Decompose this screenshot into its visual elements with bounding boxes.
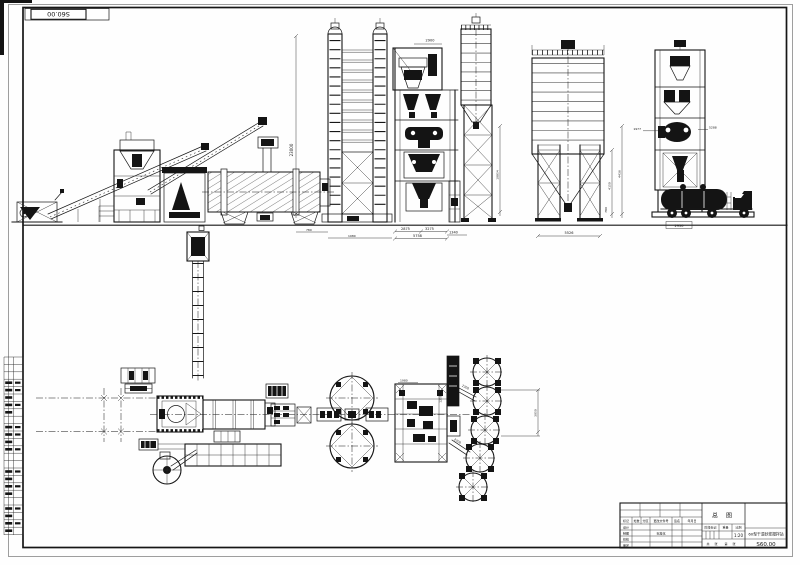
svg-text:分区: 分区	[642, 518, 648, 523]
dim-pack-l: 1977	[633, 127, 641, 131]
svg-text:共: 共	[706, 541, 709, 546]
elevation-view: 23000 780 1980 2900	[12, 13, 787, 241]
plan-axis-lines	[36, 388, 160, 442]
svg-text:张: 张	[714, 541, 717, 546]
dim-silo-big-w: 5526	[565, 231, 574, 235]
cad-sheet: S60.00	[0, 0, 800, 565]
mixing-tower: 2900 2875 3275 5758 1340	[393, 39, 467, 241]
dim-mix-total: 5758	[413, 234, 422, 238]
dim-mix-off: 1340	[449, 231, 458, 235]
standardization-label: 标准化	[656, 531, 665, 536]
dim-mix-b: 3275	[425, 227, 434, 231]
plan-silo-5	[456, 470, 490, 504]
screening-building	[99, 132, 160, 222]
dim-truck-w: 2950	[675, 224, 684, 228]
scale-value: 1:20	[734, 533, 743, 538]
svg-text:第: 第	[724, 541, 727, 546]
plan-silo-4	[463, 441, 497, 475]
svg-text:阶段标记: 阶段标记	[704, 525, 716, 530]
dim-base-a: 780	[306, 228, 312, 232]
plan-dryer-block	[157, 396, 203, 432]
plan-view: 1980 12584	[36, 226, 540, 504]
plan-silo-1	[470, 355, 504, 389]
stage-labels: 阶段标记 重量 比例	[704, 525, 741, 530]
svg-text:更改文件号: 更改文件号	[653, 518, 668, 523]
drawing-number: S60.00	[756, 542, 776, 548]
title-block: 标记 处数 分区 更改文件号 签名 年月日 设计 制图 校核 审定 标准化 总 …	[620, 503, 787, 548]
svg-text:重量: 重量	[722, 525, 728, 530]
dim-tower-height: 23000	[289, 143, 294, 156]
svg-text:张: 张	[732, 541, 735, 546]
dim-base-b: 1980	[348, 234, 356, 238]
svg-text:设计: 设计	[623, 525, 629, 530]
dim-leg-b: 4436	[618, 170, 622, 178]
project-name: 60型干混砂浆搅拌站	[748, 532, 783, 537]
svg-text:审定: 审定	[623, 542, 629, 547]
svg-text:制图: 制图	[623, 531, 629, 536]
svg-text:年月日: 年月日	[687, 518, 696, 523]
drawing-title: 总 图	[712, 512, 735, 520]
sheet-frame: S60.00	[0, 0, 793, 557]
burner-furnace	[162, 167, 207, 222]
dim-mix-a: 2875	[401, 227, 410, 231]
general-arrangement-drawing: S60.00	[0, 0, 800, 565]
plan-silo-row: 3050 2200 2200	[449, 355, 540, 504]
plan-mixer-block: 1980 12584	[395, 356, 460, 462]
corner-label-box: S60.00	[25, 9, 109, 21]
svg-text:校核: 校核	[623, 537, 629, 542]
svg-text:比例: 比例	[735, 525, 741, 530]
dim-silo-small-h: 10854	[496, 170, 500, 180]
sheet-count-labels: 共 张 第 张	[706, 541, 735, 546]
parts-list-margin-table	[4, 357, 23, 535]
title-block-header-labels: 标记 处数 分区 更改文件号 签名 年月日	[623, 518, 697, 523]
parts-list-entries	[5, 381, 20, 532]
rotary-drum-dryer	[202, 169, 334, 224]
svg-text:标记: 标记	[623, 518, 629, 523]
corner-drawing-number: S60.00	[47, 10, 70, 18]
dim-pack-r: 5288	[709, 126, 717, 130]
plan-burner-boxes	[266, 384, 311, 426]
dryer-feed-chute	[258, 137, 278, 172]
dim-plan-top: 1980	[400, 379, 408, 383]
svg-text:处数: 处数	[633, 518, 639, 523]
product-silo-large: 5526 4150 4436 780	[532, 40, 624, 238]
dim-leg-a: 4150	[608, 182, 612, 190]
plan-incline-conveyor	[187, 226, 209, 382]
dim-silo-pitch: 3050	[534, 409, 538, 417]
svg-text:签名: 签名	[674, 518, 680, 523]
bulk-tanker-truck: 2950	[661, 184, 752, 229]
dim-hopper-top: 2900	[426, 39, 435, 43]
cement-silo-small: 10854	[449, 13, 502, 222]
plan-twin-silos	[317, 372, 388, 472]
dim-plan-shaft: 12584	[439, 393, 443, 403]
dim-leg-c: 780	[604, 207, 608, 213]
plan-platform-grid	[139, 431, 281, 484]
plan-feed-boxes	[121, 368, 155, 393]
plan-silo-3	[468, 413, 502, 447]
